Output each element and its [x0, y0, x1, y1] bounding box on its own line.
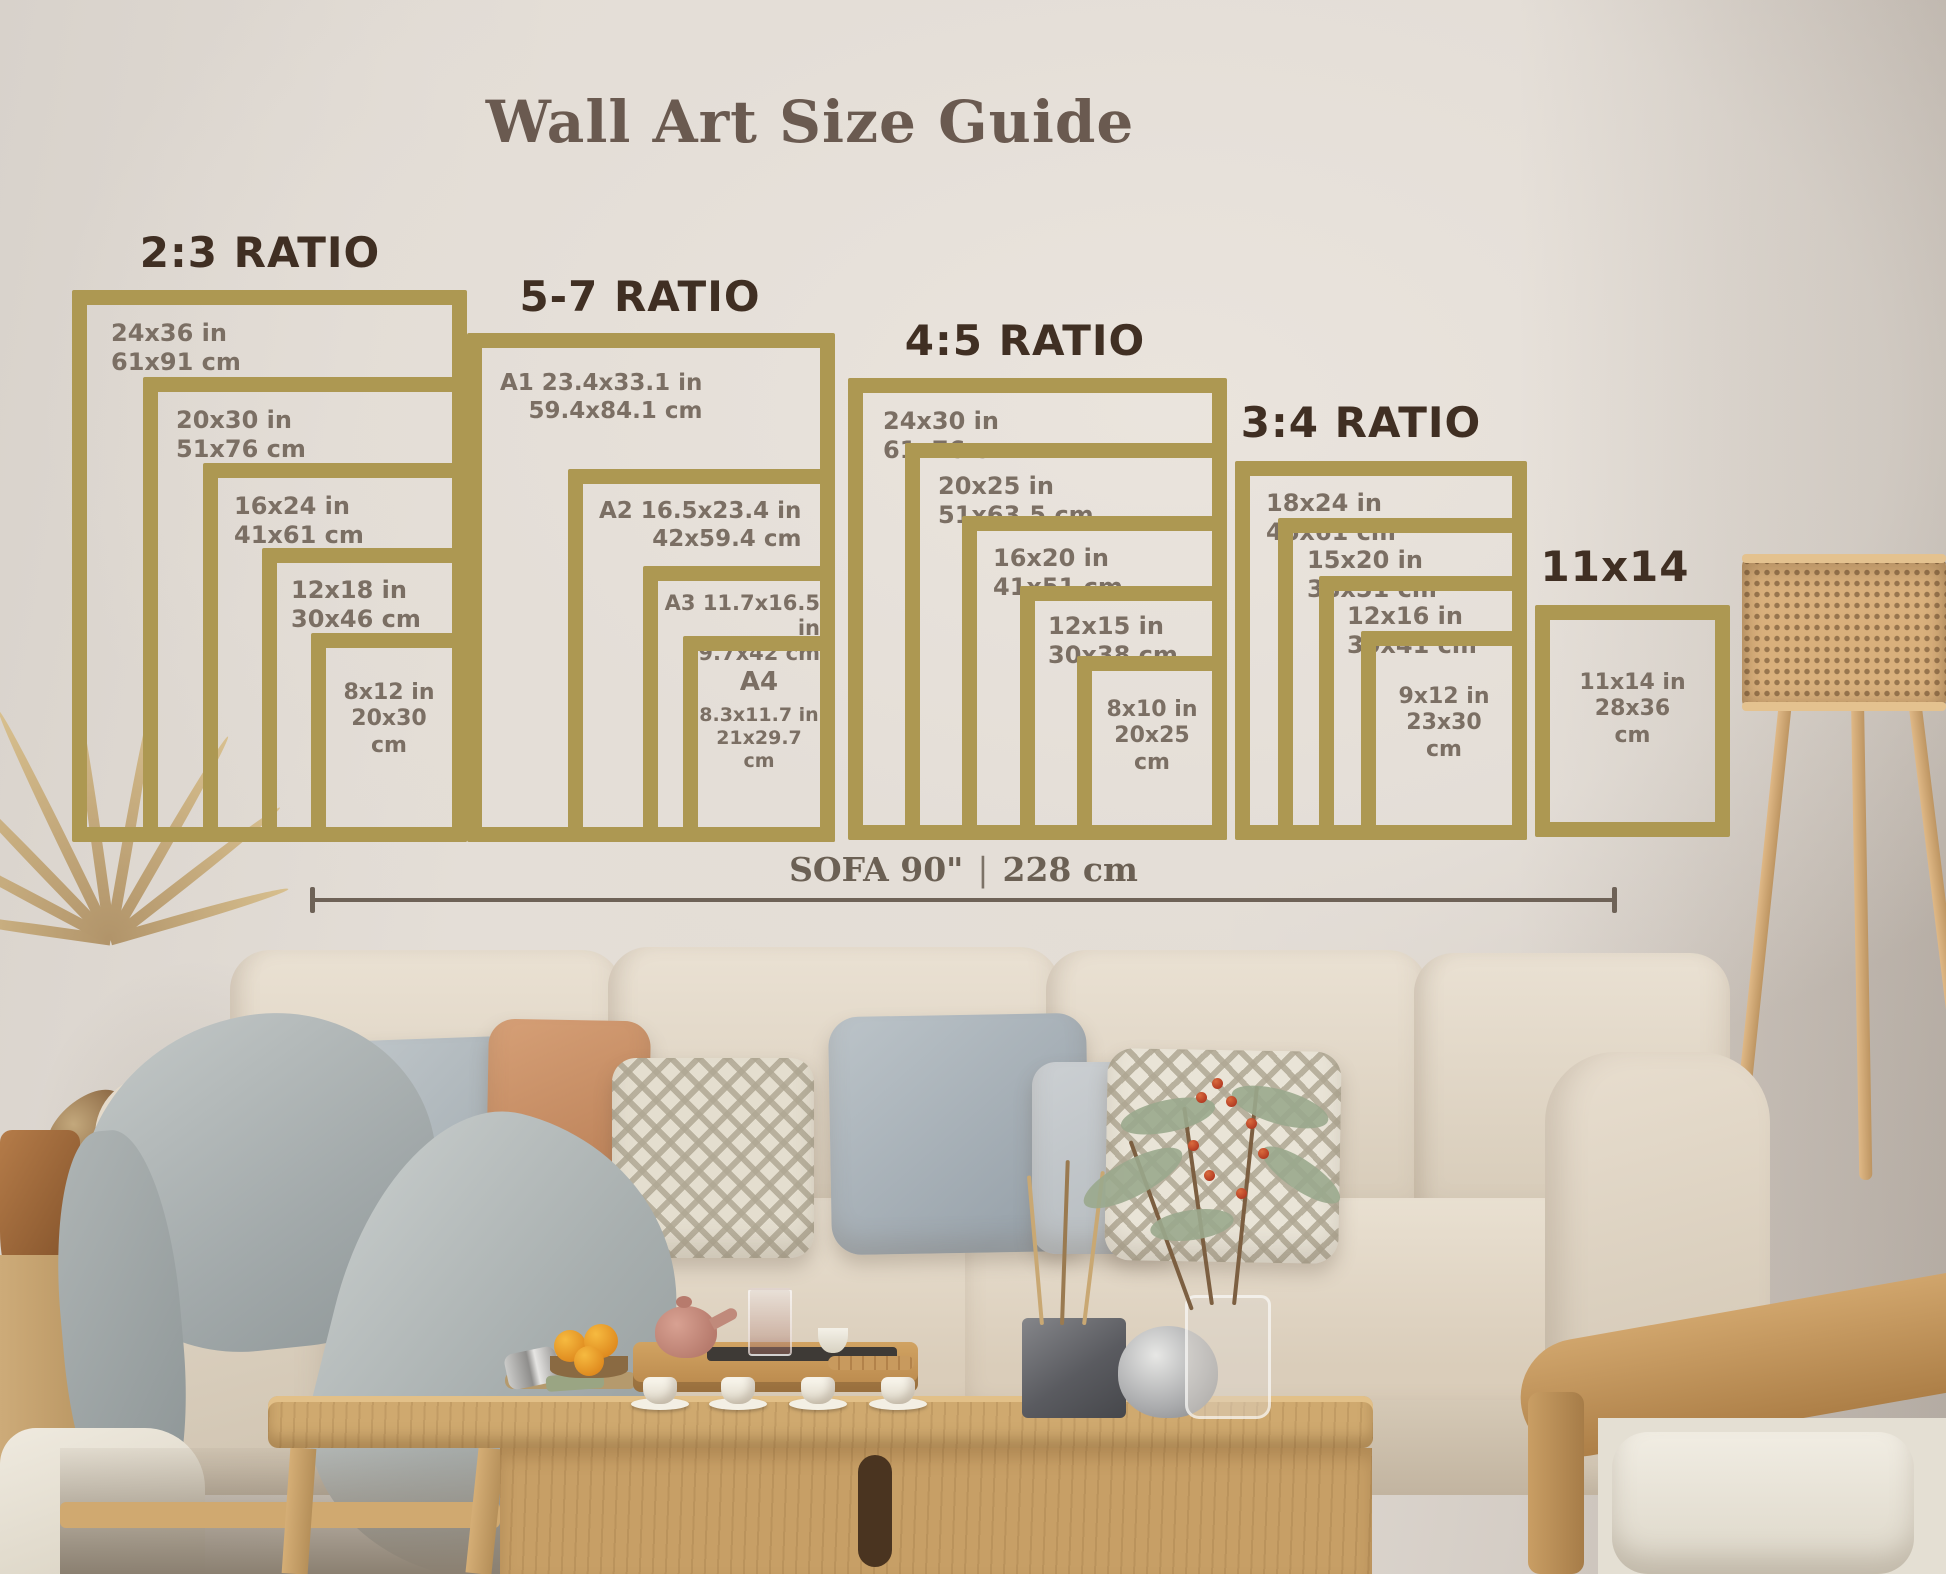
frame-label: A4 8.3x11.7 in 21x29.7 cm	[698, 667, 820, 773]
frame-8x10: 8x10 in 20x25 cm	[1077, 656, 1227, 840]
table-shelf	[60, 1502, 500, 1528]
frame-label: 11x14 in 28x36 cm	[1550, 670, 1715, 749]
table-front-panel	[500, 1448, 1372, 1574]
divider: |	[963, 850, 1002, 889]
bamboo-mat-roll	[828, 1356, 914, 1370]
glass-jar	[748, 1288, 792, 1356]
teacup	[801, 1377, 835, 1404]
group-title-5-7: 5-7 RATIO	[480, 272, 800, 321]
group-title-2-3: 2:3 RATIO	[110, 228, 410, 277]
frame-8x12: 8x12 in 20x30 cm	[311, 633, 467, 842]
frame-label: 8x12 in 20x30 cm	[326, 680, 452, 759]
red-berry	[1258, 1148, 1269, 1159]
sofa-width-cm: 228 cm	[1003, 850, 1138, 889]
frame-9x12: 9x12 in 23x30 cm	[1361, 631, 1527, 840]
measurement-tick-right	[1612, 887, 1617, 913]
group-title-11x14: 11x14	[1515, 542, 1715, 591]
sofa-measurement: SOFA 90"|228 cm	[310, 850, 1617, 920]
lamp-rim	[1742, 702, 1946, 711]
red-berry	[1204, 1170, 1215, 1181]
group-title-3-4: 3:4 RATIO	[1196, 398, 1526, 447]
teacup	[881, 1377, 915, 1404]
red-berry	[1212, 1078, 1223, 1089]
armchair-wood-post	[1528, 1392, 1584, 1574]
frame-label: 20x30 in 51x76 cm	[176, 406, 306, 464]
red-berry	[1226, 1096, 1237, 1107]
lamp-rim	[1742, 554, 1946, 563]
page-title: Wall Art Size Guide	[310, 88, 1310, 156]
teapot-lid	[676, 1296, 692, 1308]
red-berry	[1246, 1118, 1257, 1129]
frame-label: 24x36 in 61x91 cm	[111, 319, 241, 377]
teacup	[721, 1377, 755, 1404]
living-room-scene: Wall Art Size Guide 2:3 RATIO 24x36 in 6…	[0, 0, 1946, 1574]
glass-vase	[1185, 1295, 1271, 1419]
armchair-cushion	[1612, 1432, 1914, 1574]
teacup	[643, 1377, 677, 1404]
gray-brush-holder	[1022, 1318, 1126, 1418]
frame-11x14: 11x14 in 28x36 cm	[1535, 605, 1730, 837]
frame-label: A2 16.5x23.4 in 42x59.4 cm	[599, 498, 801, 553]
teacup-with-saucer	[869, 1376, 927, 1410]
orange-fruit	[574, 1346, 604, 1376]
sofa-width-inches: SOFA 90"	[789, 850, 963, 889]
red-berry	[1236, 1188, 1247, 1199]
teacup-with-saucer	[631, 1376, 689, 1410]
sofa-measurement-label: SOFA 90"|228 cm	[310, 850, 1617, 889]
frame-label: 12x18 in 30x46 cm	[291, 576, 421, 634]
measurement-tick-left	[310, 887, 315, 913]
frame-label: 8x10 in 20x25 cm	[1092, 697, 1212, 776]
frame-label: 16x24 in 41x61 cm	[234, 492, 364, 550]
frame-a4: A4 8.3x11.7 in 21x29.7 cm	[683, 636, 835, 842]
teapot	[655, 1306, 717, 1358]
frame-label: 9x12 in 23x30 cm	[1376, 684, 1512, 763]
frame-label: A1 23.4x33.1 in 59.4x84.1 cm	[500, 370, 702, 425]
group-title-4-5: 4:5 RATIO	[860, 316, 1190, 365]
table-handle-slot	[858, 1455, 892, 1567]
red-berry	[1196, 1092, 1207, 1103]
teacup-with-saucer	[709, 1376, 767, 1410]
lamp-cane-shade	[1742, 556, 1946, 710]
teacup-with-saucer	[789, 1376, 847, 1410]
measurement-line	[310, 898, 1617, 902]
red-berry	[1188, 1140, 1199, 1151]
